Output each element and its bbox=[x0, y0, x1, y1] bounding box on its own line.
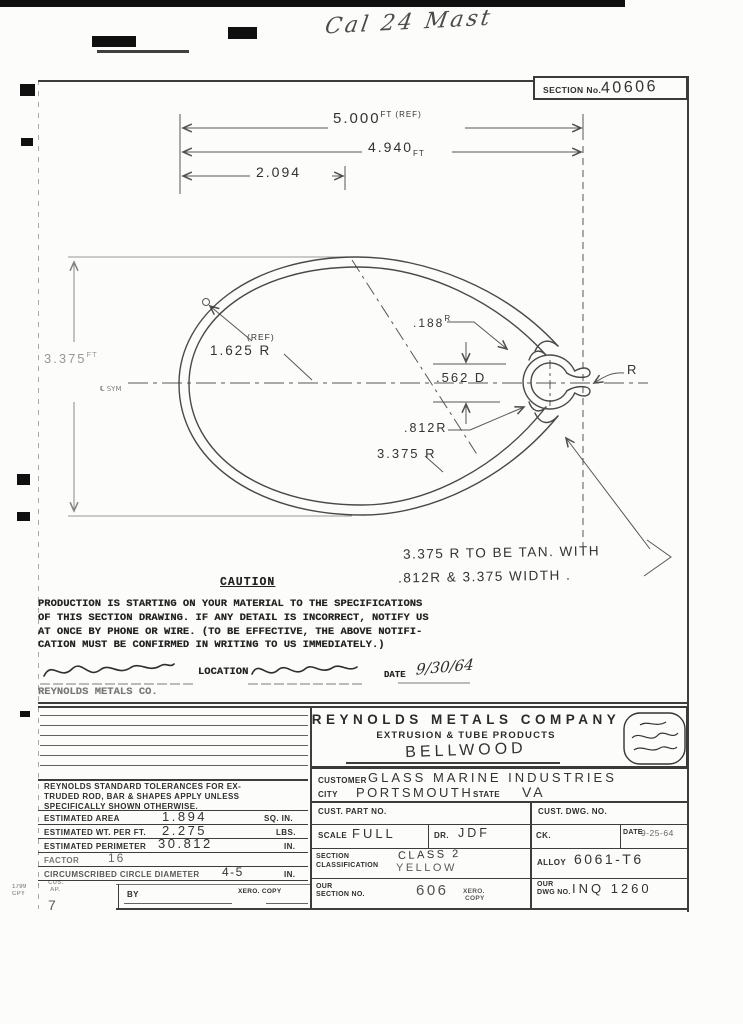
row-line bbox=[310, 824, 688, 825]
dim-unit: FT (REF) bbox=[381, 110, 422, 119]
circumscribed-circle-value: 4-5 bbox=[222, 865, 244, 879]
caution-heading: CAUTION bbox=[220, 576, 275, 590]
dim-unit: FT bbox=[87, 350, 98, 359]
tolerance-line: REYNOLDS STANDARD TOLERANCES FOR EX- bbox=[44, 782, 241, 792]
by-label: BY bbox=[127, 890, 139, 899]
dim-unit: FT bbox=[413, 149, 425, 158]
ruled-line bbox=[40, 745, 308, 746]
margin-mark: CPY bbox=[12, 891, 25, 897]
margin-mark: 1799 bbox=[12, 884, 27, 890]
dim-partial-width: 2.094 bbox=[256, 164, 301, 180]
xero-copy-label-1: XERO. bbox=[463, 888, 485, 895]
row-line bbox=[38, 779, 308, 781]
drawn-by-value: JDF bbox=[458, 826, 490, 840]
xero-copy-label-2: COPY bbox=[465, 895, 485, 902]
margin-mark: 7 bbox=[48, 897, 58, 913]
our-section-value: 606 bbox=[416, 882, 449, 899]
cell-line bbox=[118, 884, 119, 909]
row-line bbox=[38, 852, 308, 853]
company-name: REYNOLDS METALS COMPANY bbox=[310, 712, 622, 727]
est-wt-unit: LBS. bbox=[276, 828, 296, 837]
state-value: VA bbox=[522, 784, 546, 800]
dim-overall-width: 4.940FT bbox=[368, 139, 425, 157]
radius-value: .188 bbox=[413, 316, 444, 330]
checked-label: CK. bbox=[536, 831, 551, 840]
dim-value: 3.375 bbox=[44, 351, 87, 366]
radius-big-label: 3.375 R bbox=[377, 446, 437, 461]
drawn-by-label: DR. bbox=[434, 831, 449, 840]
tangency-note-line2: .812R & 3.375 WIDTH . bbox=[398, 567, 572, 585]
caution-line: AT ONCE BY PHONE OR WIRE. (TO BE EFFECTI… bbox=[38, 626, 429, 640]
factor-label: FACTOR bbox=[44, 856, 79, 865]
radius-lip-label: .188R bbox=[413, 314, 451, 332]
column-line bbox=[310, 706, 312, 909]
tb-date-value: 9-25-64 bbox=[641, 828, 674, 838]
dim-value: 5.000 bbox=[333, 110, 381, 127]
xero-copy-footer-label: XERO. COPY bbox=[238, 888, 281, 895]
row-line bbox=[38, 866, 308, 867]
radius-groove-label: .812R bbox=[404, 421, 447, 435]
radius-main-label: 1.625 R bbox=[210, 343, 271, 358]
row-line bbox=[310, 802, 688, 803]
cust-dwg-no-label: CUST. DWG. NO. bbox=[538, 807, 607, 816]
est-perimeter-label: ESTIMATED PERIMETER bbox=[44, 842, 146, 851]
scale-label: SCALE bbox=[318, 831, 347, 840]
ruled-line bbox=[40, 715, 308, 716]
caution-line: OF THIS SECTION DRAWING. IF ANY DETAIL I… bbox=[38, 612, 429, 626]
dimension-lines bbox=[68, 114, 671, 576]
caution-line: PRODUCTION IS STARTING ON YOUR MATERIAL … bbox=[38, 598, 429, 612]
ruled-line bbox=[40, 725, 308, 726]
dim-overall-width-ref: 5.000FT (REF) bbox=[333, 110, 422, 128]
cell-line bbox=[620, 824, 621, 848]
row-line bbox=[310, 848, 688, 849]
tb-date-label: DATE bbox=[623, 829, 643, 836]
margin-mark: CUS. bbox=[48, 880, 64, 886]
est-area-label: ESTIMATED AREA bbox=[44, 814, 120, 823]
divider-line bbox=[38, 702, 688, 704]
circumscribed-circle-unit: IN. bbox=[284, 870, 295, 879]
factor-value: 16 bbox=[108, 851, 125, 865]
est-wt-label: ESTIMATED WT. PER FT. bbox=[44, 828, 146, 837]
tolerance-note: REYNOLDS STANDARD TOLERANCES FOR EX- TRU… bbox=[44, 782, 241, 812]
dim-value: 4.940 bbox=[368, 139, 413, 155]
radius-letter-label: R bbox=[627, 362, 638, 377]
class-color-value: YELLOW bbox=[396, 862, 457, 874]
alloy-label: ALLOY bbox=[537, 858, 566, 867]
fill-in-line bbox=[124, 903, 232, 904]
scale-value: FULL bbox=[352, 826, 396, 841]
date-label: DATE bbox=[384, 669, 406, 683]
est-area-unit: SQ. IN. bbox=[264, 814, 293, 823]
signature-underlines bbox=[40, 683, 470, 684]
classification-label-1: SECTION bbox=[316, 853, 349, 860]
dim-section-height: 3.375FT bbox=[44, 350, 98, 368]
centerline-symmetry-label: ℄ SYM bbox=[100, 385, 121, 393]
bore-diameter-label: .562 D bbox=[436, 370, 486, 385]
ruled-line bbox=[40, 735, 308, 736]
city-label: CITY bbox=[318, 790, 338, 799]
company-stamp-line: REYNOLDS METALS CO. bbox=[38, 686, 158, 700]
our-dwg-value: INQ 1260 bbox=[572, 881, 652, 896]
city-value: PORTSMOUTH bbox=[356, 785, 473, 800]
est-perimeter-unit: IN. bbox=[284, 842, 295, 851]
circumscribed-circle-label: CIRCUMSCRIBED CIRCLE DIAMETER bbox=[44, 870, 200, 879]
ruled-line bbox=[40, 755, 308, 756]
plant-underline bbox=[346, 762, 560, 764]
class-value: CLASS 2 bbox=[398, 848, 461, 862]
customer-value: GLASS MARINE INDUSTRIES bbox=[368, 770, 617, 785]
fill-in-line bbox=[266, 903, 308, 904]
est-perimeter-value: 30.812 bbox=[158, 836, 213, 851]
row-line bbox=[116, 884, 310, 885]
tolerance-line: TRUDED ROD, BAR & SHAPES APPLY UNLESS bbox=[44, 792, 241, 802]
cust-part-no-label: CUST. PART NO. bbox=[318, 807, 387, 816]
caution-line: CATION MUST BE CONFIRMED IN WRITING TO U… bbox=[38, 639, 429, 653]
our-section-label-1: OUR bbox=[316, 883, 332, 890]
column-line bbox=[530, 802, 532, 909]
our-section-label-2: SECTION NO. bbox=[316, 891, 365, 898]
est-area-value: 1.894 bbox=[162, 809, 207, 824]
row-line bbox=[38, 880, 308, 881]
ref-note-label: (REF) bbox=[247, 332, 275, 342]
customer-label: CUSTOMER bbox=[318, 776, 367, 785]
classification-label-2: CLASSIFICATION bbox=[316, 862, 378, 869]
mast-profile bbox=[179, 257, 590, 515]
alloy-value: 6061-T6 bbox=[574, 851, 644, 867]
margin-mark: AP. bbox=[50, 887, 60, 893]
radius-unit: R bbox=[444, 314, 451, 323]
scanned-section-drawing: Cal 24 Mast SECTION No. 40606 bbox=[0, 0, 743, 1024]
location-label: LOCATION bbox=[198, 666, 248, 680]
state-label: STATE bbox=[473, 790, 500, 799]
our-dwg-label-2: DWG NO. bbox=[537, 889, 571, 896]
row-line bbox=[310, 878, 688, 879]
ruled-line bbox=[40, 765, 308, 766]
titleblock-bottom-line bbox=[116, 908, 688, 910]
cell-line bbox=[428, 824, 429, 848]
caution-paragraph: PRODUCTION IS STARTING ON YOUR MATERIAL … bbox=[38, 598, 429, 653]
our-dwg-label-1: OUR bbox=[537, 881, 553, 888]
